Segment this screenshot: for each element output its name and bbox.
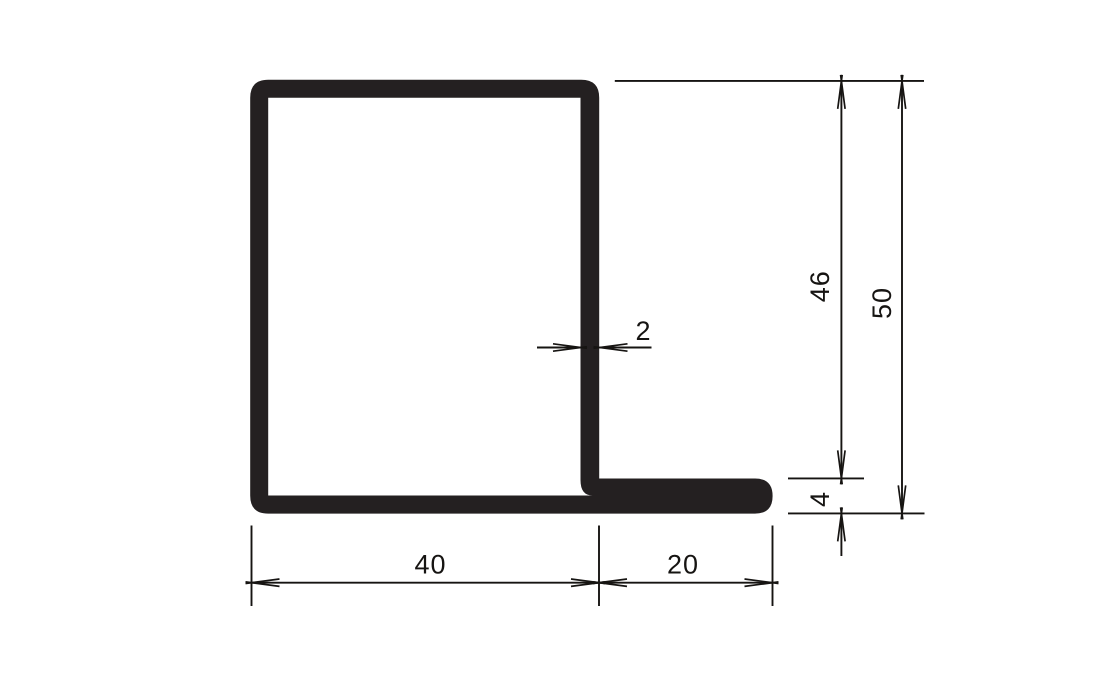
svg-text:20: 20	[667, 550, 699, 580]
svg-text:50: 50	[867, 287, 897, 319]
svg-text:4: 4	[805, 492, 835, 507]
svg-text:46: 46	[805, 270, 835, 302]
svg-text:2: 2	[635, 316, 650, 346]
svg-text:40: 40	[414, 550, 446, 580]
